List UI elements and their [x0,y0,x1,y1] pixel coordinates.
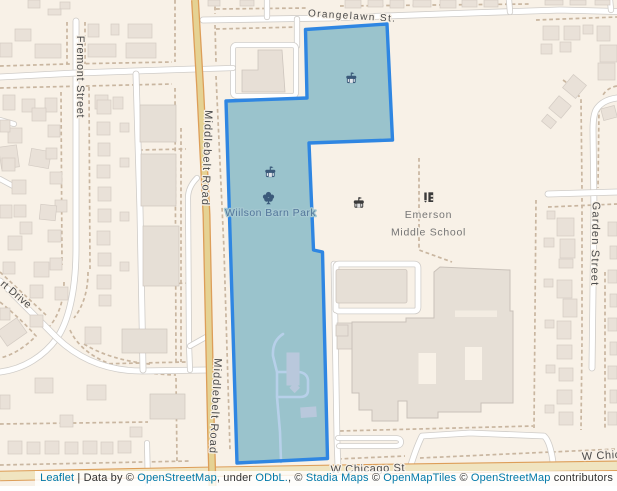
svg-text:Emerson: Emerson [405,209,453,221]
svg-text:Wiilson Barn Park: Wiilson Barn Park [225,207,316,219]
svg-text:Fremont Street: Fremont Street [74,36,86,118]
svg-text:W Chicago: W Chicago [582,448,617,463]
svg-text:Garden Street: Garden Street [588,202,601,287]
svg-text:Middle School: Middle School [391,227,466,239]
